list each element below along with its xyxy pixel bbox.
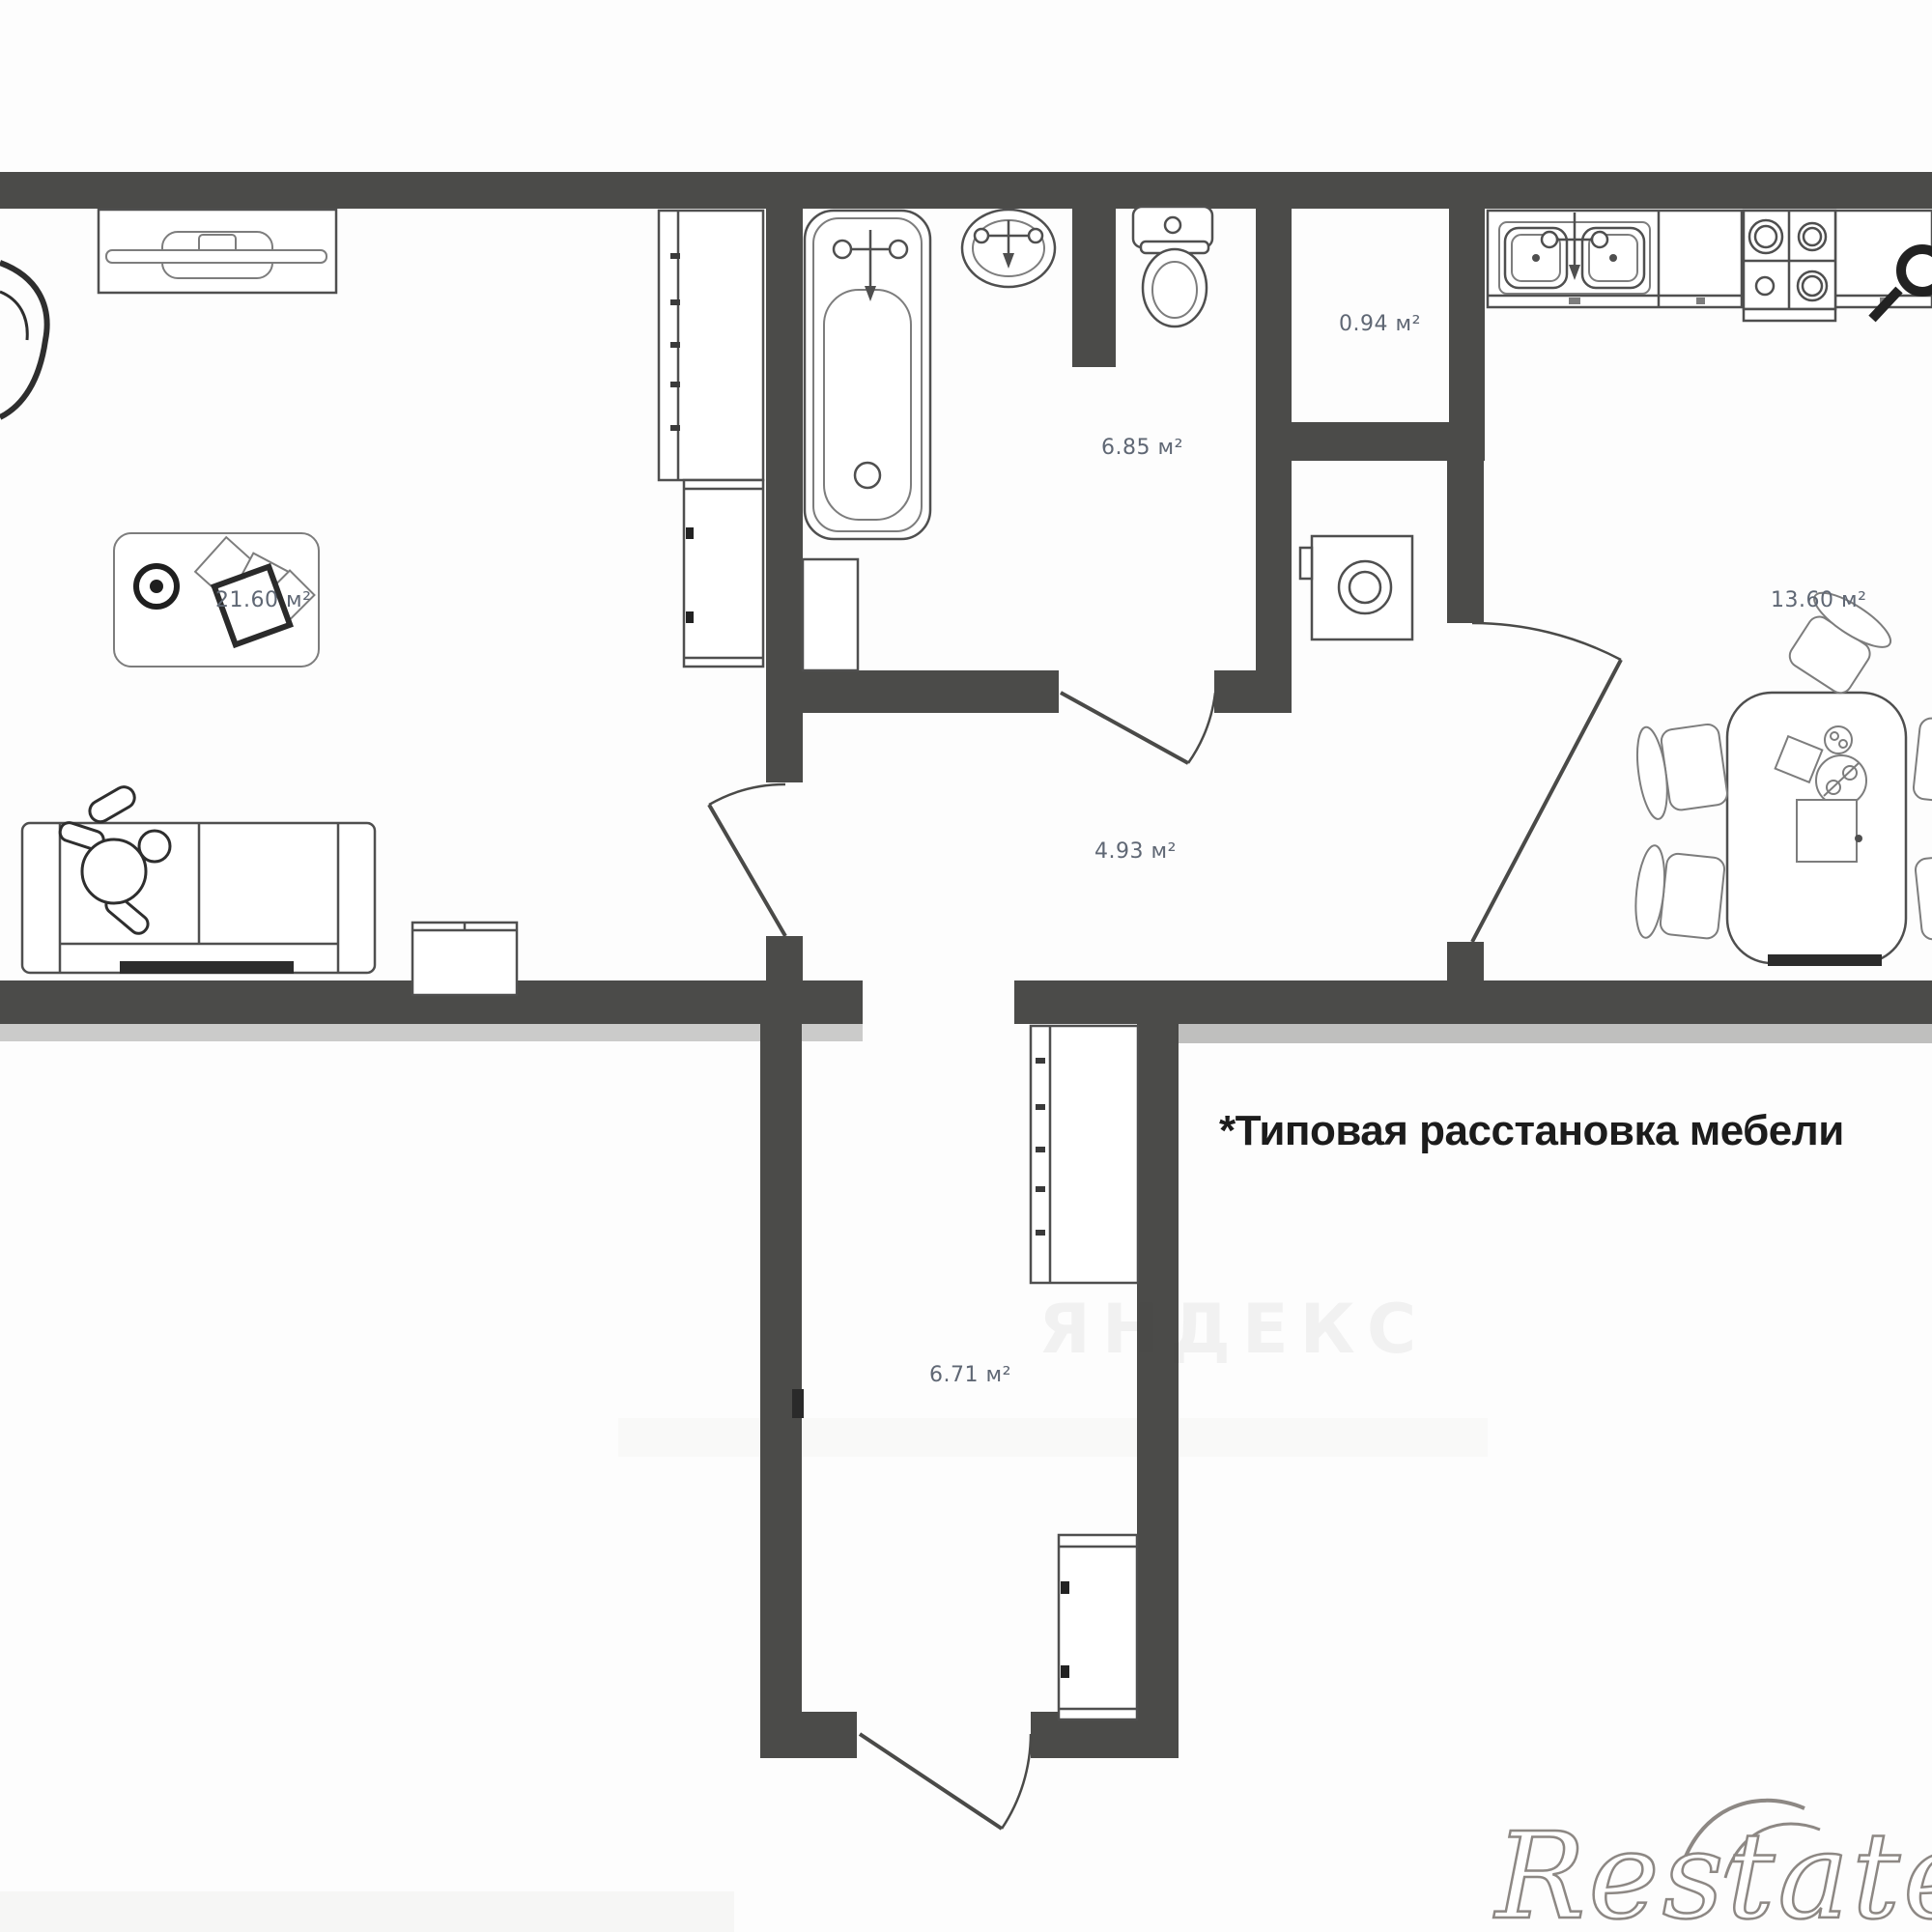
faint-watermark: ЯНДЕКС bbox=[1038, 1290, 1428, 1369]
chair bbox=[1632, 844, 1726, 946]
wardrobe bbox=[659, 211, 763, 480]
soundbar bbox=[120, 961, 294, 974]
restate-watermark: Restate bbox=[1493, 1801, 1932, 1932]
chair bbox=[1633, 717, 1730, 820]
side-table bbox=[412, 923, 517, 995]
room-label-storage: 0.94 м² bbox=[1339, 312, 1421, 336]
electrical-panel bbox=[792, 1389, 804, 1418]
bathtub bbox=[805, 211, 930, 539]
tv-unit bbox=[99, 210, 336, 293]
scan-smudge bbox=[0, 1891, 734, 1932]
room-label-corridor: 6.71 м² bbox=[929, 1363, 1011, 1387]
hall-cabinet bbox=[1059, 1535, 1137, 1719]
stove bbox=[1744, 211, 1835, 321]
room-label-bathroom: 6.85 м² bbox=[1101, 436, 1183, 460]
kitchen-sink bbox=[1499, 213, 1650, 294]
floor-plan: 21.60 м² 6.85 м² 0.94 м² 4.93 м² 13.60 м… bbox=[0, 0, 1932, 1932]
room-label-living-room: 21.60 м² bbox=[215, 588, 311, 612]
furniture-note: *Типовая расстановка мебели bbox=[1219, 1107, 1844, 1154]
bath-cabinet bbox=[803, 559, 858, 670]
floor-plan-drawing: 21.60 м² 6.85 м² 0.94 м² 4.93 м² 13.60 м… bbox=[0, 0, 1932, 1932]
dresser bbox=[684, 480, 763, 667]
corridor-wardrobe bbox=[1031, 1026, 1138, 1283]
watermark-text: Restate bbox=[1493, 1807, 1932, 1932]
washing-machine bbox=[1300, 536, 1412, 639]
bathroom-sink bbox=[962, 210, 1055, 287]
scan-smudge bbox=[618, 1418, 1488, 1457]
dining-table bbox=[1727, 693, 1906, 966]
room-label-kitchen: 13.60 м² bbox=[1771, 588, 1866, 612]
room-label-hallway: 4.93 м² bbox=[1094, 839, 1177, 864]
